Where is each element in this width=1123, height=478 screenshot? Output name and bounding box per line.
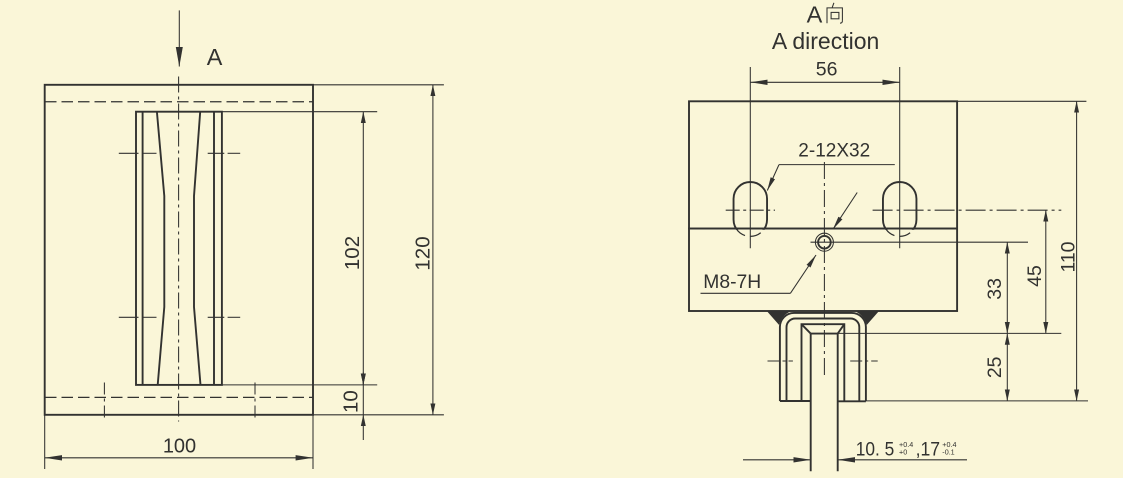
svg-text:A direction: A direction	[772, 28, 879, 54]
svg-text:45: 45	[1024, 265, 1046, 287]
svg-text:25: 25	[984, 356, 1006, 378]
svg-text:A: A	[207, 44, 223, 70]
svg-text:33: 33	[984, 278, 1006, 300]
svg-text:M8-7H: M8-7H	[703, 272, 761, 293]
svg-text:56: 56	[816, 58, 838, 80]
svg-text:10. 5: 10. 5	[856, 439, 895, 460]
svg-text:A: A	[807, 1, 823, 27]
svg-text:-0.1: -0.1	[942, 448, 954, 457]
svg-text:120: 120	[411, 236, 434, 270]
svg-text:2-12X32: 2-12X32	[798, 141, 870, 162]
svg-text:102: 102	[341, 236, 364, 270]
svg-text:+0: +0	[899, 448, 907, 457]
svg-text:100: 100	[163, 435, 196, 457]
svg-text:10: 10	[339, 390, 362, 413]
svg-text:,17: ,17	[916, 439, 941, 460]
svg-text:110: 110	[1057, 241, 1079, 272]
